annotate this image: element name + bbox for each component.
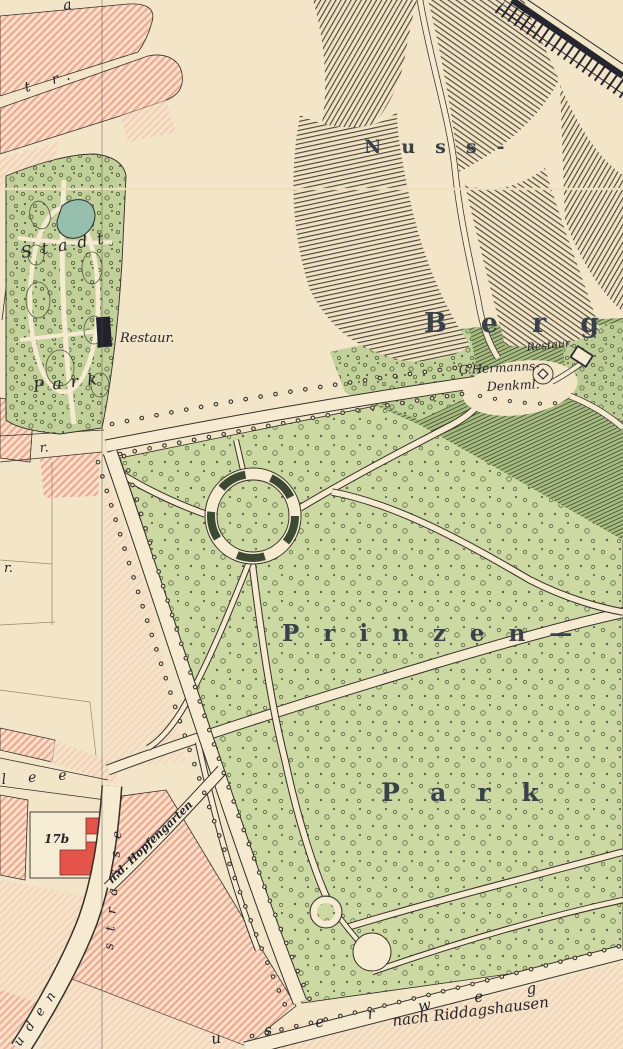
nussberg-label-line2: Berg — [424, 308, 623, 339]
stadtpark-restaurant-label: Restaur. — [119, 331, 174, 346]
monument-label-line2: Denkml. — [485, 376, 540, 394]
street-label-r: r. — [39, 440, 49, 456]
nussberg-label-line1: Nuss- — [364, 136, 524, 158]
prinzenpark-label-line1: Prinzen— — [282, 620, 596, 647]
prinzenpark-label-line2: Park — [381, 778, 570, 807]
historic-city-map: Nuss- Berg Prinzen— Park Stadt Park Rest… — [0, 0, 623, 1049]
plot-label-r: r. — [4, 561, 13, 576]
park-pond-circle — [353, 933, 391, 971]
map-canvas: Nuss- Berg Prinzen— Park Stadt Park Rest… — [0, 0, 623, 1049]
stadtpark-restaurant-building — [96, 317, 112, 348]
plot-number-17b: 17b — [44, 832, 69, 846]
